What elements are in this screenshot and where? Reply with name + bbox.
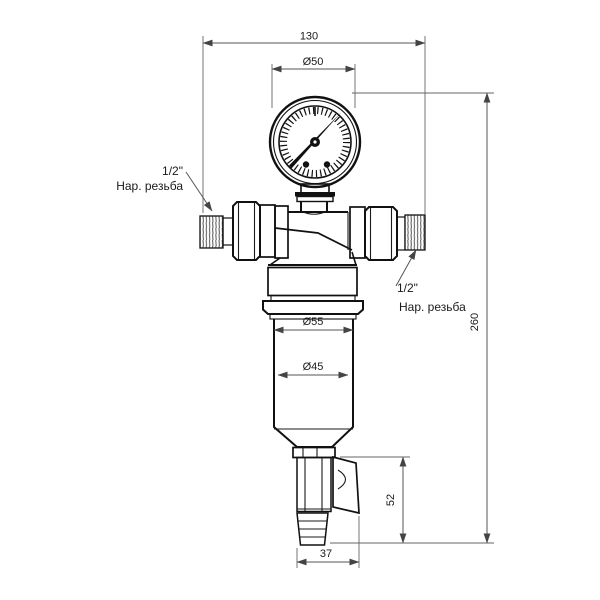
drain-handle: [333, 457, 359, 513]
pressure-gauge: [270, 97, 360, 197]
dim-130-text: 130: [300, 31, 318, 43]
technical-drawing: 130 Ø50 260 Ø55 Ø45 52 37 1/2" Нар. резь…: [0, 0, 600, 600]
left-union-nut: [233, 202, 260, 260]
bowl-cup: [274, 319, 353, 447]
bowl-flange: [263, 301, 363, 314]
dim-37-text: 37: [320, 548, 332, 560]
body-shoulder: [275, 228, 352, 250]
gauge-hub-center: [313, 140, 316, 143]
dim-d50-text: Ø50: [303, 56, 324, 68]
dimension-collar-diameter: Ø55: [274, 316, 353, 330]
gauge-collar: [297, 197, 333, 202]
drain-nut: [293, 448, 335, 458]
left-thread-size: 1/2": [162, 164, 183, 178]
right-thread-callout: 1/2" Нар. резьба: [396, 250, 466, 314]
drain-body: [297, 458, 331, 512]
dim-d55-text: Ø55: [303, 316, 324, 328]
drain-handle-detail: [338, 470, 346, 489]
right-thread: [405, 215, 425, 250]
filter-body: [200, 197, 425, 266]
dimension-drain-width: 37: [297, 516, 359, 568]
dim-52-text: 52: [385, 494, 397, 506]
left-thread-callout: 1/2" Нар. резьба: [116, 164, 212, 211]
right-thread-type: Нар. резьба: [399, 300, 466, 314]
drain-valve: [293, 448, 359, 546]
left-thread: [200, 216, 223, 248]
gauge-screw-right: [324, 161, 330, 167]
ring-nut: [268, 268, 357, 296]
right-union-nut: [365, 207, 397, 260]
gauge-screw-left: [303, 161, 309, 167]
dimension-drain-height: 52: [340, 457, 410, 543]
dimension-bowl-diameter: Ø45: [278, 361, 348, 375]
filter-bowl: [263, 265, 363, 447]
right-thread-size: 1/2": [397, 281, 418, 295]
drawing-canvas: 130 Ø50 260 Ø55 Ø45 52 37 1/2" Нар. резь…: [0, 0, 600, 600]
dimension-overall-height: 260: [330, 93, 494, 543]
dim-260-text: 260: [469, 313, 481, 331]
dim-d45-text: Ø45: [303, 361, 324, 373]
left-thread-type: Нар. резьба: [116, 179, 183, 193]
